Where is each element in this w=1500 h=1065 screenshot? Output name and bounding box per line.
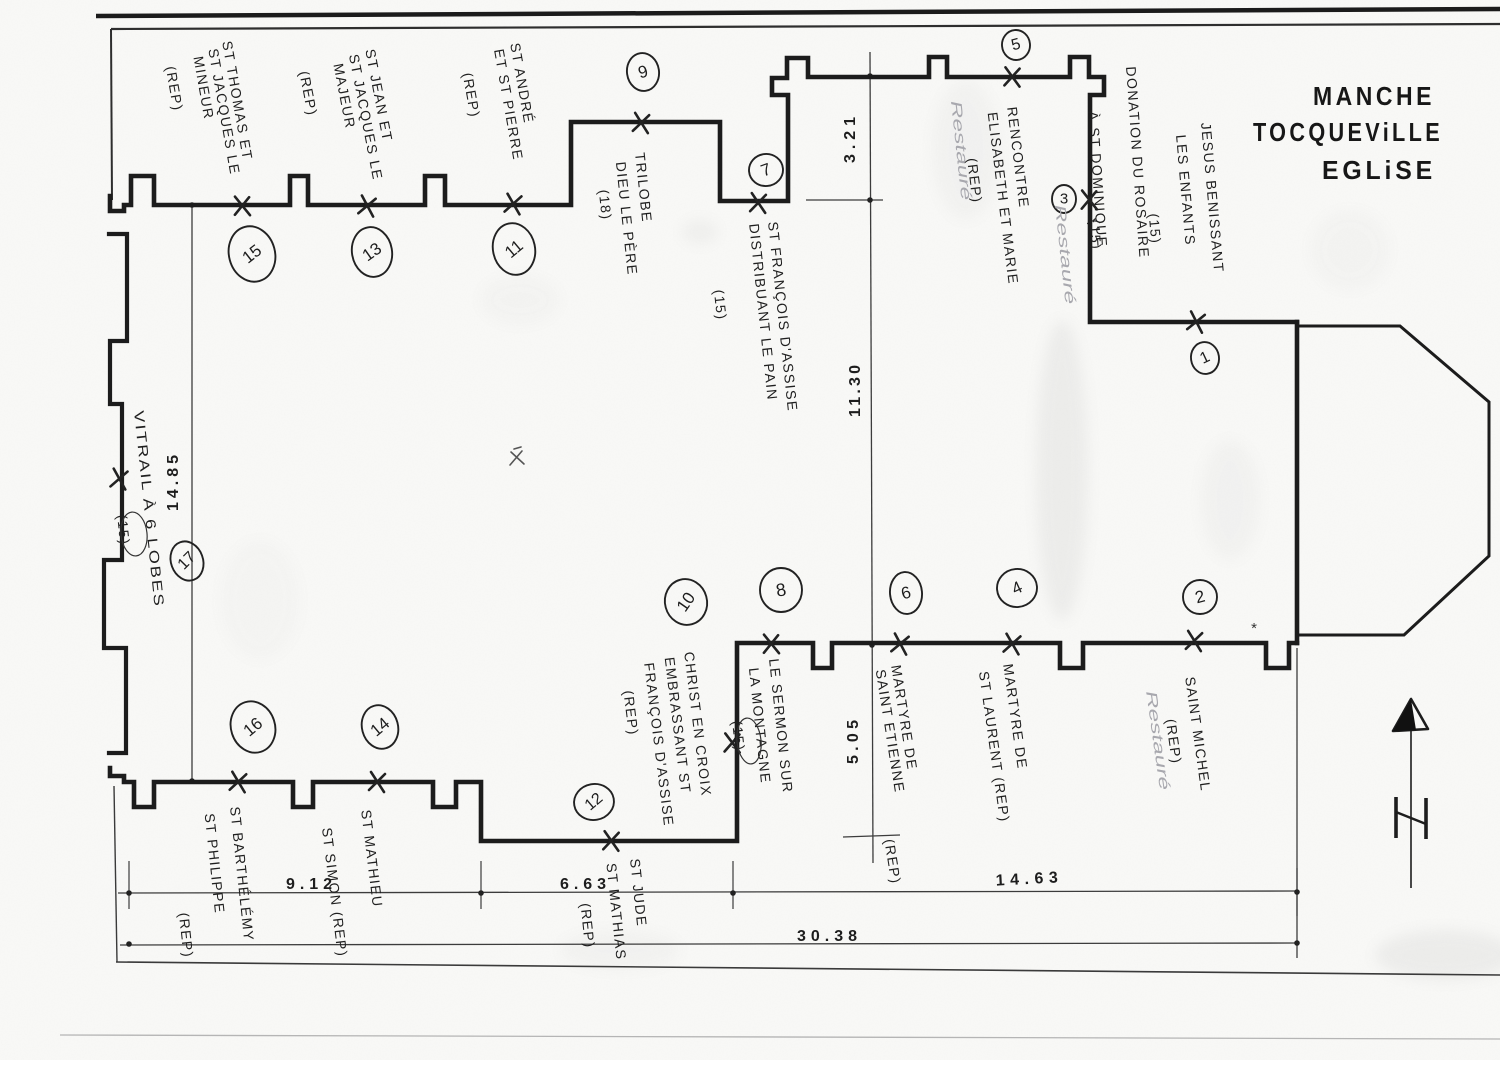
svg-text:9.12: 9.12	[286, 876, 332, 893]
svg-text:EGLiSE: EGLiSE	[1322, 155, 1436, 185]
svg-text:14.85: 14.85	[165, 455, 182, 511]
svg-text:3.21: 3.21	[842, 117, 859, 163]
svg-text:(15): (15)	[711, 289, 730, 321]
svg-text:*: *	[1251, 620, 1257, 637]
svg-text:(15): (15)	[729, 720, 748, 752]
svg-text:TOCQUEViLLE: TOCQUEViLLE	[1253, 117, 1443, 147]
svg-text:(15): (15)	[1087, 219, 1105, 251]
svg-text:11.30: 11.30	[847, 365, 864, 417]
svg-text:6.63: 6.63	[560, 876, 606, 893]
svg-text:MANCHE: MANCHE	[1313, 81, 1435, 111]
svg-text:(15): (15)	[1146, 213, 1165, 245]
svg-text:(18): (18)	[596, 189, 615, 221]
svg-text:5.05: 5.05	[845, 720, 862, 764]
